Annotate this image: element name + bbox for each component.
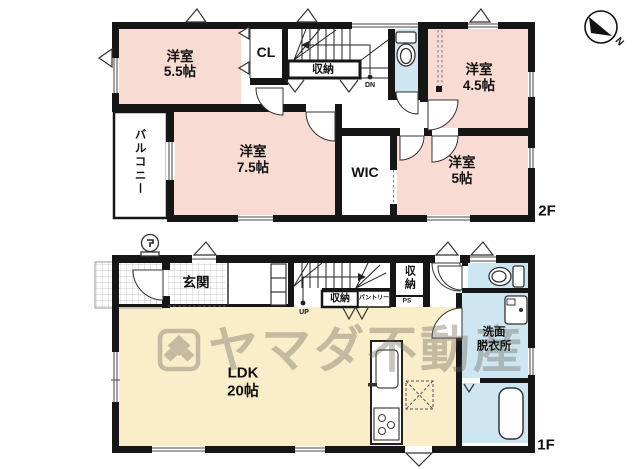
label-bedroom-75-size: 7.5帖 [237, 160, 269, 176]
label-washroom-line1: 洗面 [483, 326, 506, 339]
label-genkan: 玄関 [183, 275, 210, 291]
label-ldk-size: 20帖 [227, 382, 259, 399]
label-ldk-name: LDK [228, 364, 259, 381]
label-washroom-line2: 脱衣所 [477, 340, 512, 353]
kitchen-faucet-icon [368, 383, 377, 387]
yamada-logo-icon [157, 328, 201, 372]
label-bedroom-55-name: 洋室 [167, 49, 194, 65]
label-bedroom-45-name: 洋室 [466, 62, 493, 78]
label-stairs-up: UP [299, 309, 309, 317]
bathtub-icon [499, 388, 523, 439]
floor-2f-plan [99, 9, 535, 222]
toilet-icon-2f [396, 32, 416, 66]
washbasin-icon [505, 296, 527, 324]
label-pantry: パントリー [359, 296, 389, 303]
label-stairs-dn: DN [365, 82, 375, 90]
shoe-cabinet [271, 264, 286, 305]
label-bedroom-75-name: 洋室 [240, 144, 267, 160]
label-closet-cl: CL [257, 44, 276, 60]
label-bedroom-5-name: 洋室 [449, 155, 476, 171]
label-storage-hall: 収納 [403, 265, 416, 291]
label-floor-1f: 1F [537, 436, 555, 453]
label-wic: WIC [351, 164, 378, 180]
toilet-icon-1f [489, 266, 524, 287]
label-storage-1f: 収納 [330, 293, 350, 305]
outdoor-faucet-icon [141, 235, 159, 257]
watermark: ヤマダ不動産 [157, 325, 526, 375]
floorplan-canvas: ヤマダ不動産 洋室 5.5帖 CL 収納 DN 洋室 4.5帖 バルコニー 洋室… [0, 0, 640, 469]
label-bedroom-5-size: 5帖 [451, 171, 472, 187]
label-balcony: バルコニー [132, 128, 145, 196]
label-bedroom-55-size: 5.5帖 [164, 64, 196, 80]
compass-icon [585, 11, 617, 43]
label-pipe-space: PS [403, 297, 412, 304]
label-bedroom-45-size: 4.5帖 [463, 78, 495, 94]
stove-icon [374, 408, 399, 440]
label-storage-2f: 収納 [312, 64, 334, 77]
label-floor-2f: 2F [538, 202, 556, 219]
